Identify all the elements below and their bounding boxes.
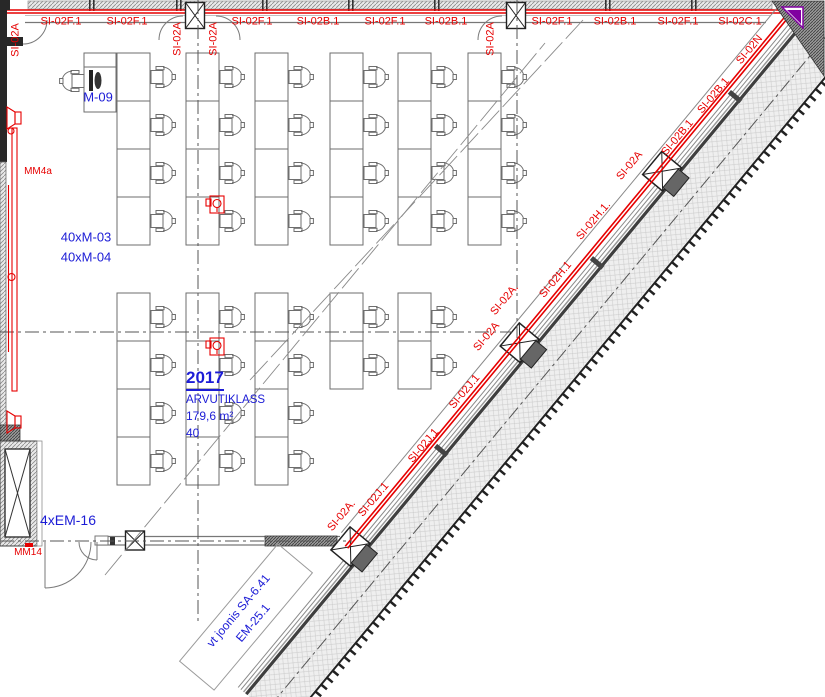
chair-icon <box>151 403 175 424</box>
monitors-label-1: 40xM-03 <box>61 231 112 244</box>
chair-icon <box>289 67 313 88</box>
chair-icon <box>289 163 313 184</box>
si-wiring-label: SI-02A <box>486 22 497 56</box>
floorplan-page: M-09 40xM-03 40xM-04 4xEM-16 MM4a MM14 2… <box>0 0 825 697</box>
si-wiring-label: SI-02F.1 <box>658 17 699 28</box>
chair-icon <box>432 355 456 376</box>
chair-icon <box>289 211 313 232</box>
chair-icon <box>151 163 175 184</box>
chair-icon <box>289 451 313 472</box>
chair-icon <box>432 67 456 88</box>
chair-icon <box>502 115 526 136</box>
si-wiring-label: SI-02B.1 <box>425 17 468 28</box>
monitors-label-2: 40xM-04 <box>61 251 112 264</box>
monitor-icon <box>89 70 93 91</box>
room-capacity: 40 <box>186 426 265 440</box>
desk-grid <box>60 53 527 485</box>
chair-icon <box>364 211 388 232</box>
chair-icon <box>151 451 175 472</box>
chair-icon <box>220 163 244 184</box>
chair-icon <box>220 307 244 328</box>
chair-icon <box>289 115 313 136</box>
chair-icon <box>432 211 456 232</box>
chair-icon <box>364 307 388 328</box>
chair-icon <box>220 211 244 232</box>
chair-icon <box>289 403 313 424</box>
chair-icon <box>220 115 244 136</box>
diagonal-wall <box>223 0 825 697</box>
cable-tray-label-bottom: MM14 <box>14 548 42 558</box>
si-wiring-label: SI-02F.1 <box>232 17 273 28</box>
chair-icon <box>432 115 456 136</box>
si-wiring-label: SI-02A <box>11 23 22 57</box>
si-wiring-label: SI-02B.1 <box>594 17 637 28</box>
si-wiring-label: SI-02F.1 <box>41 17 82 28</box>
room-area: 179,6 m² <box>186 409 265 423</box>
chair-icon <box>289 355 313 376</box>
chair-icon <box>364 163 388 184</box>
si-wiring-label: SI-02A <box>209 22 220 56</box>
chair-icon <box>432 307 456 328</box>
chair-icon <box>60 71 84 92</box>
si-wiring-label: SI-02B.1 <box>297 17 340 28</box>
speaker-icon <box>7 107 21 433</box>
chair-icon <box>364 67 388 88</box>
chair-icon <box>364 355 388 376</box>
door-swing <box>45 542 97 588</box>
chair-icon <box>432 163 456 184</box>
chair-icon <box>364 115 388 136</box>
si-wiring-label: SI-02F.1 <box>532 17 573 28</box>
chair-icon <box>151 307 175 328</box>
si-wiring-label: SI-02C.1 <box>718 17 761 28</box>
chair-icon <box>151 211 175 232</box>
chair-icon <box>151 67 175 88</box>
si-wiring-label: SI-02F.1 <box>365 17 406 28</box>
cable-tray-label-left: MM4a <box>24 167 52 177</box>
chair-icon <box>151 115 175 136</box>
cable-tray-symbols <box>7 107 21 433</box>
teacher-station-label: M-09 <box>83 91 113 104</box>
room-number: 2017 <box>186 368 224 391</box>
si-wiring-label: SI-02A <box>173 22 184 56</box>
chair-icon <box>220 67 244 88</box>
room-stamp: 2017 ARVUTIKLASS 179,6 m² 40 <box>186 368 265 440</box>
chair-icon <box>502 163 526 184</box>
chair-icon <box>502 211 526 232</box>
sockets-label: 4xEM-16 <box>40 513 96 527</box>
chair-icon <box>220 451 244 472</box>
room-name: ARVUTIKLASS <box>186 394 265 406</box>
chair-icon <box>151 355 175 376</box>
shaft <box>0 441 42 547</box>
si-wiring-label: SI-02F.1 <box>107 17 148 28</box>
